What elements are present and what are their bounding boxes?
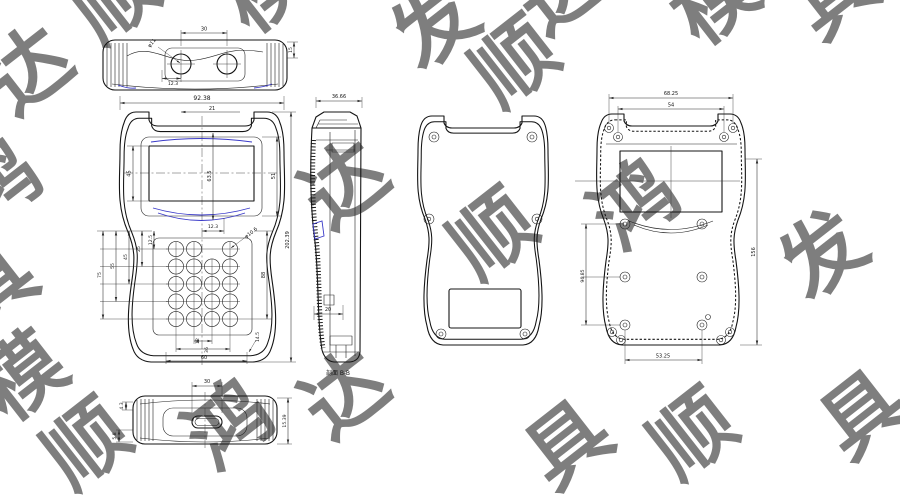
dim-bezel-height: 63.5 [207,170,213,181]
dim-depth: 36.66 [332,94,346,100]
watermark-char: 达 [283,122,407,248]
dim-overall-width: 92.38 [193,95,210,102]
dim-slot-width: 30 [204,379,210,385]
dim-bottom-width: 53.25 [656,354,670,360]
watermark-char: 鸿 [0,122,59,248]
dim-below-screen: 12.3 [208,224,218,230]
dim-row-45: 45 [123,254,129,260]
watermark-char: 具 [773,0,897,58]
keypad-buttons [166,241,240,327]
dim-bottom-height: 15.39 [282,414,288,427]
cad-drawing-sheet: 达顺模发达顺模具鸿具达顺鸿发模顺鸿达具顺具 30 φ11 12.3 15 [0,0,900,500]
watermark-layer: 达顺模发达顺模具鸿具达顺鸿发模顺鸿达具顺具 [0,0,900,500]
drawing-canvas: 达顺模发达顺模具鸿具达顺鸿发模顺鸿达具顺具 30 φ11 12.3 15 [0,0,900,500]
mounting-holes [167,50,241,78]
dim-top-offset: 21 [209,106,215,112]
dim-row-12-5: 12.5 [148,235,154,245]
dim-bottom-60: 60 [201,355,207,361]
watermark-char: 达 [0,8,91,134]
dim-inner-overall-height: 156 [751,247,757,257]
watermark-char: 顺 [631,372,755,498]
dim-top-width: 30 [201,27,207,33]
dim-bottom-36: 36 [204,347,210,353]
dim-hole-diameter: φ11 [147,38,158,49]
dim-screen-top: 51 [271,173,277,179]
watermark-char: 顺 [431,172,555,298]
dim-corner: 14.5 [255,332,261,342]
dim-row-25: 25 [136,246,142,252]
watermark-char: 鸿 [573,142,697,268]
dim-bottom-12: 12 [195,338,201,344]
watermark-char: 具 [506,382,630,500]
dim-boss-height: 96.85 [580,269,586,282]
watermark-char: 达 [283,332,407,458]
dim-row-75: 75 [97,272,103,278]
dim-lip-b: 5.8 [112,432,118,439]
dim-key-diameter: φ10.6 [244,226,259,240]
dim-lip-a: 4.3 [119,402,125,409]
dim-window-width: 54 [668,103,674,109]
dim-overall-height: 202.39 [285,231,291,249]
watermark-char: 具 [801,352,900,478]
lcd-bezel [141,137,262,216]
dim-top-edge-height: 15 [288,47,294,53]
dim-lcd-height: 45 [127,170,133,176]
dim-row-55: 55 [110,263,116,269]
lcd-window [149,146,254,201]
watermark-char: 发 [761,192,885,318]
dim-boss-width: 68.25 [664,91,678,97]
top-view-rib-lines [107,43,283,87]
section-caption: 剖面 B-B [326,369,350,377]
dim-inner-depth: 20 [325,307,331,313]
front-view: φ10.6 92.38 21 45 63.5 51 12.3 75 55 45 … [97,95,296,366]
dim-hole-offset: 12.3 [168,81,178,87]
watermark-char: 鸿 [167,362,291,488]
battery-door [449,289,521,328]
dim-keypad-height: 88 [261,272,267,278]
watermark-char: 模 [203,0,327,52]
watermark-char: 模 [653,0,777,64]
